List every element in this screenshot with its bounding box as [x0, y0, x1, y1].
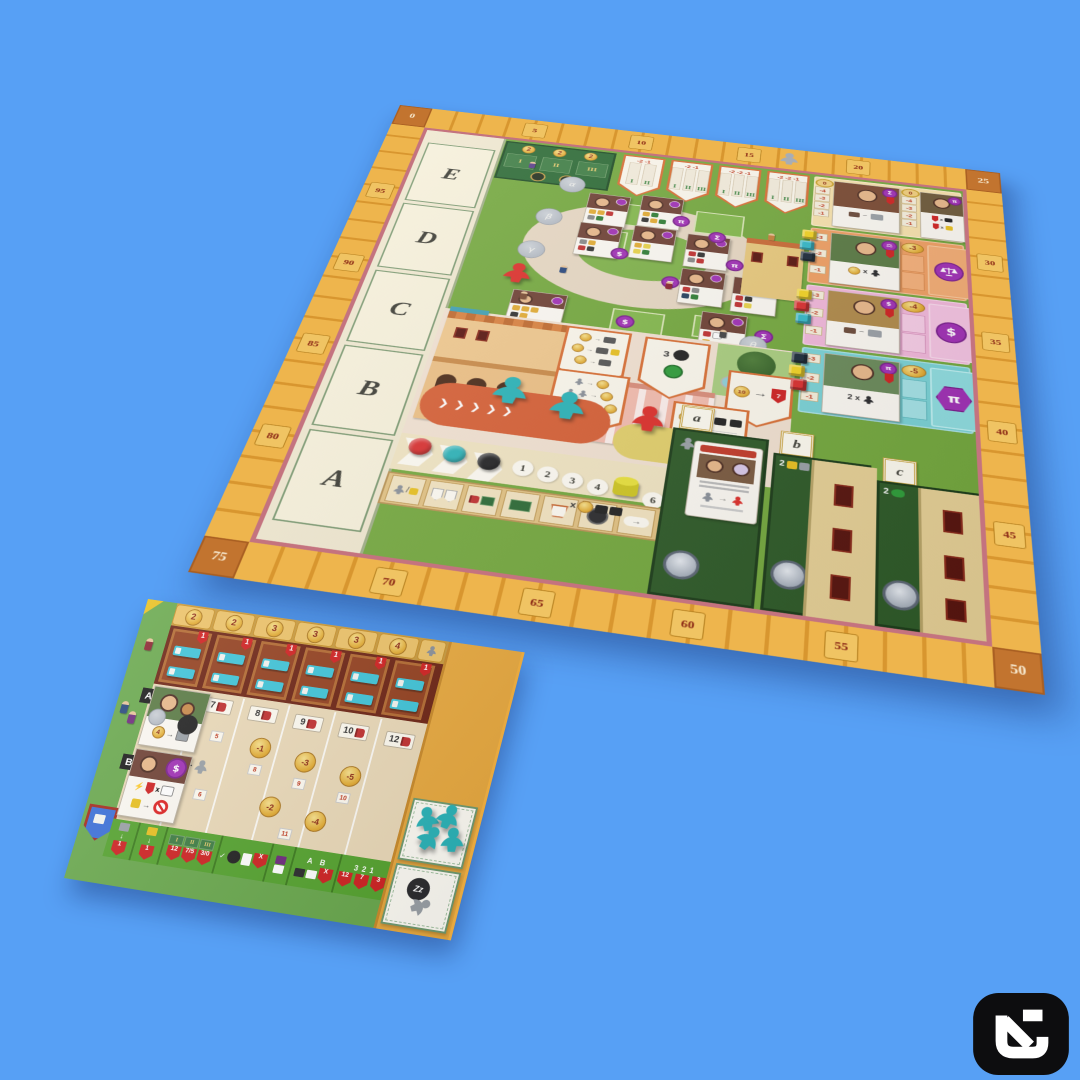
teal-cube [799, 240, 814, 251]
statue-medallion [882, 578, 919, 613]
statue-medallion [661, 548, 701, 582]
pi-icon: π [936, 385, 973, 413]
law-scales-icon [934, 261, 964, 283]
round-marker-meeple-icon [778, 151, 800, 166]
scene: 5 10 15 20 30 35 40 45 70 65 60 55 95 90… [0, 0, 1080, 1080]
medicine-icon: $ [936, 321, 968, 345]
cell-tag: 8 [247, 764, 263, 777]
tier-cell: III [575, 161, 609, 178]
teal-meeple [544, 385, 592, 425]
navy-cube [791, 351, 808, 364]
villager-figure [719, 329, 727, 338]
red-cube [794, 300, 810, 312]
score-number: 35 [981, 331, 1010, 353]
un-monogram-icon [972, 992, 1070, 1076]
teal-cube [795, 313, 811, 325]
score-number: 85 [295, 332, 331, 354]
penalty-coin: -5 [902, 364, 927, 379]
student-card [628, 225, 677, 262]
round-token [529, 171, 547, 182]
score-number: 70 [368, 567, 409, 598]
score-corner-25: 25 [965, 169, 1002, 194]
grid-icon [499, 490, 540, 521]
student-card [676, 268, 726, 308]
score-number: 45 [993, 521, 1027, 549]
penalty-coin: -4 [901, 300, 925, 314]
yellow-cube [796, 288, 812, 300]
student-arrival-tab [416, 639, 447, 663]
statue-medallion [769, 558, 808, 592]
college-b-building [802, 460, 877, 629]
score-number: 10 [628, 135, 655, 151]
medicine-square: $ [928, 303, 973, 363]
main-board: 5 10 15 20 30 35 40 45 70 65 60 55 95 90… [188, 105, 1045, 695]
yellow-cube [788, 364, 805, 377]
score-number: 80 [253, 423, 292, 449]
coin: 2 [521, 145, 537, 154]
tuition-column-header: 9 [292, 714, 325, 733]
score-number: 5 [521, 123, 548, 139]
coin: 2 [552, 149, 568, 158]
red-cube [790, 378, 807, 391]
pennant-pair-icon [422, 480, 464, 511]
score-number: 30 [976, 253, 1003, 272]
penalty-coin: -3 [901, 242, 924, 255]
score-corner-50: 50 [992, 647, 1045, 695]
college-b-yard: 2 [760, 453, 871, 625]
law-square [927, 245, 970, 300]
professor-card: π x x [920, 192, 966, 243]
score-number: 15 [736, 147, 762, 163]
setup-table: 2 2 2 I II III [494, 141, 617, 191]
score-number: 95 [365, 182, 396, 200]
penalty-coin: -1 [247, 736, 273, 759]
professor-card: ⚖ x [828, 233, 899, 292]
study-pennant: -2 -2 -1 IIIIII [763, 171, 810, 216]
book-grid-icon [461, 485, 503, 516]
tuition-column-header: 8 [247, 705, 280, 724]
study-pennant: -2 -1 III [615, 154, 666, 198]
cell-tag: 10 [335, 792, 351, 805]
publisher-logo [972, 992, 1070, 1076]
campus-building [740, 238, 805, 302]
college-c-yard: 2 [875, 480, 987, 641]
cell-tag: 9 [291, 778, 307, 791]
score-number: 20 [846, 159, 871, 176]
score-number: 90 [332, 253, 365, 273]
cell-tag: 5 [209, 730, 225, 742]
red-meeple [627, 400, 669, 437]
tuition-column-header: 10 [337, 722, 370, 741]
yellow-cube [802, 229, 817, 240]
score-number: 60 [669, 608, 706, 640]
navy-cube [800, 251, 815, 262]
penalty-coin: -2 [257, 795, 284, 819]
score-number: 65 [517, 587, 556, 618]
red-meeple [498, 258, 536, 286]
player-board: 2 2 3 3 3 4 1 1 1 1 1 1 A B 6 7 8 [64, 599, 522, 940]
event-card: → [684, 440, 763, 525]
score-number: 40 [987, 420, 1018, 445]
score-number: 55 [824, 630, 859, 663]
math-square: π [930, 367, 978, 432]
professor-card: $ − [825, 290, 900, 354]
tier-cell: II [539, 157, 573, 174]
professor-card: Σ − [832, 181, 900, 234]
teal-meeple [438, 824, 468, 854]
study-pennant: -2 -2 -1 IIIIII [713, 165, 761, 210]
villager-figure [665, 281, 673, 289]
cell-tag: 6 [192, 788, 208, 801]
colleges-section: a b c → [645, 397, 987, 641]
coin: 2 [583, 152, 598, 161]
yellow-disc-stack [612, 478, 640, 497]
professor-rows: 0 -4 -3 -2 -1 Σ − 0 -4 -3 -2 -1 π [795, 174, 975, 436]
villager-figure [768, 233, 775, 241]
meeple-pencil-icon: / [384, 475, 427, 506]
penalty-coin: -3 [292, 750, 318, 774]
professor-card: π 2 x [821, 353, 900, 422]
penalty-coin: -5 [337, 765, 363, 789]
college-c-building [918, 488, 992, 645]
tuition-column-header: 12 [383, 731, 416, 750]
cell-tag: 11 [277, 828, 293, 841]
